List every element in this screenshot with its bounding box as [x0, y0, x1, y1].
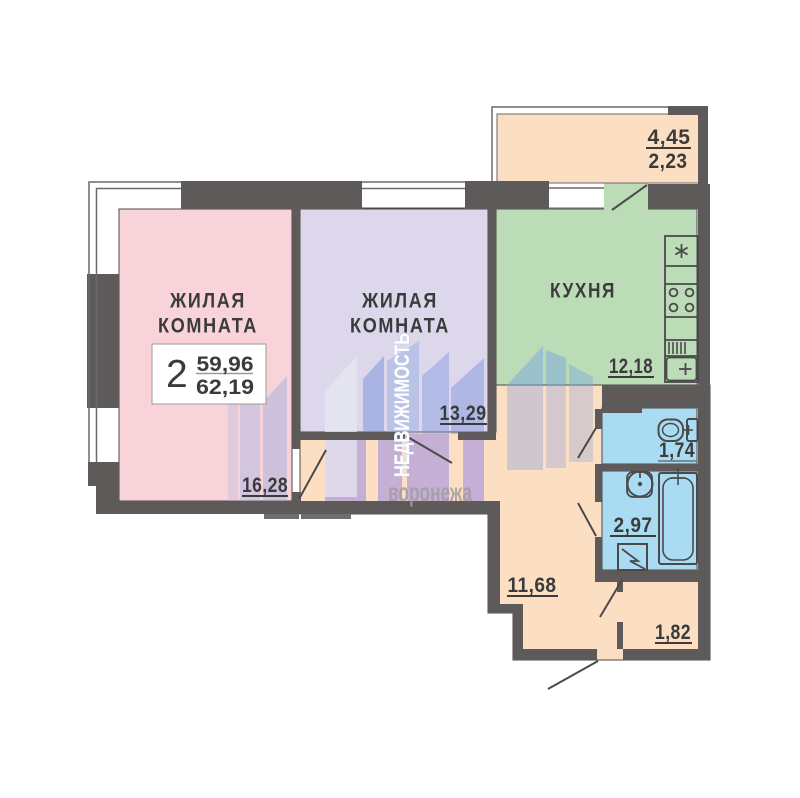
svg-text:2: 2 — [166, 353, 188, 396]
svg-text:НЕДВИЖИМОСТЬ: НЕДВИЖИМОСТЬ — [391, 333, 414, 477]
svg-text:1,82: 1,82 — [655, 621, 691, 644]
svg-text:2,23: 2,23 — [649, 150, 688, 173]
svg-text:ЖИЛАЯ: ЖИЛАЯ — [169, 289, 246, 313]
svg-text:13,29: 13,29 — [440, 402, 487, 425]
svg-text:1,74: 1,74 — [659, 439, 695, 462]
svg-text:16,28: 16,28 — [242, 474, 288, 497]
svg-text:воронежа: воронежа — [388, 477, 472, 507]
svg-text:КУХНЯ: КУХНЯ — [550, 279, 616, 303]
svg-text:12,18: 12,18 — [609, 355, 653, 378]
svg-text:КОМНАТА: КОМНАТА — [158, 314, 258, 338]
svg-text:11,68: 11,68 — [508, 574, 557, 597]
svg-text:ЖИЛАЯ: ЖИЛАЯ — [361, 289, 438, 313]
svg-text:59,96: 59,96 — [197, 353, 254, 376]
svg-text:62,19: 62,19 — [196, 376, 254, 399]
svg-text:4,45: 4,45 — [648, 126, 691, 149]
svg-text:2,97: 2,97 — [614, 514, 653, 537]
